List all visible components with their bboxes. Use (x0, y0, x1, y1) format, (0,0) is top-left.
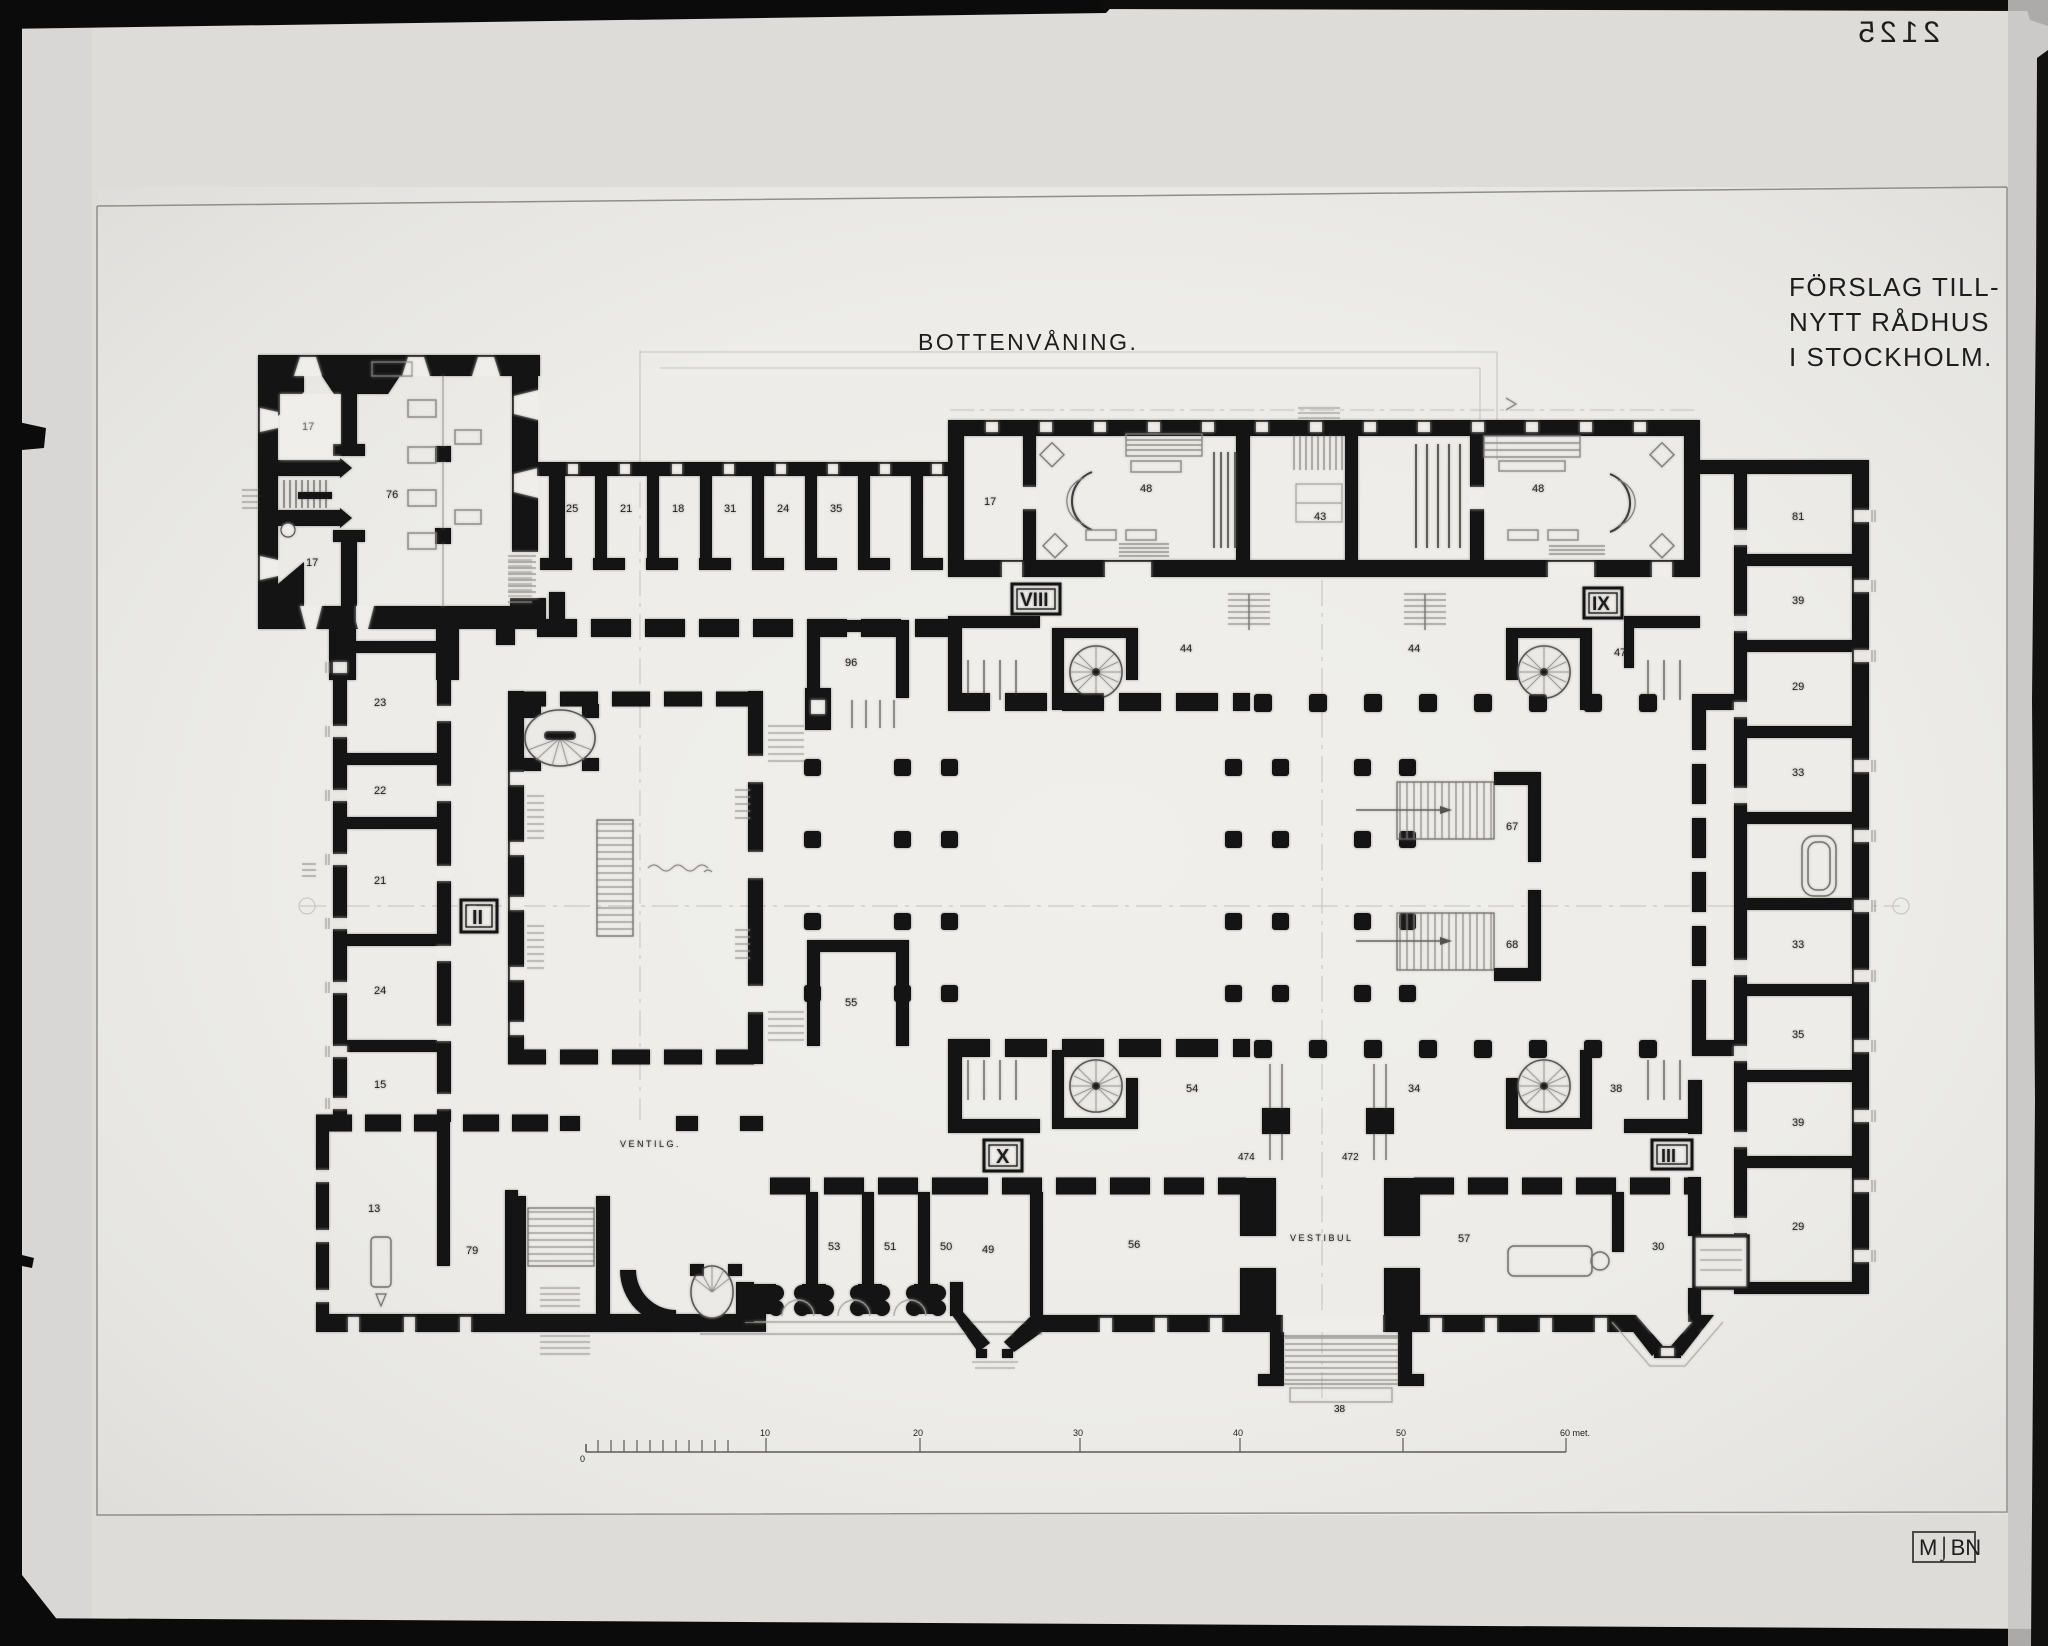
svg-text:M⌡BN: M⌡BN (1919, 1535, 1981, 1562)
svg-text:FÖRSLAG TILL-: FÖRSLAG TILL- (1789, 272, 2000, 302)
svg-text:10: 10 (760, 1428, 770, 1438)
svg-text:2125: 2125 (1853, 16, 1940, 49)
svg-text:BOTTENVÅNING.: BOTTENVÅNING. (918, 328, 1138, 355)
svg-text:20: 20 (913, 1428, 923, 1438)
svg-text:NYTT RÅDHUS: NYTT RÅDHUS (1789, 307, 1990, 337)
svg-text:60 met.: 60 met. (1560, 1428, 1590, 1438)
svg-text:30: 30 (1073, 1428, 1083, 1438)
svg-text:I STOCKHOLM.: I STOCKHOLM. (1789, 342, 1993, 372)
svg-text:0: 0 (580, 1454, 585, 1464)
svg-text:40: 40 (1233, 1428, 1243, 1438)
svg-text:50: 50 (1396, 1428, 1406, 1438)
